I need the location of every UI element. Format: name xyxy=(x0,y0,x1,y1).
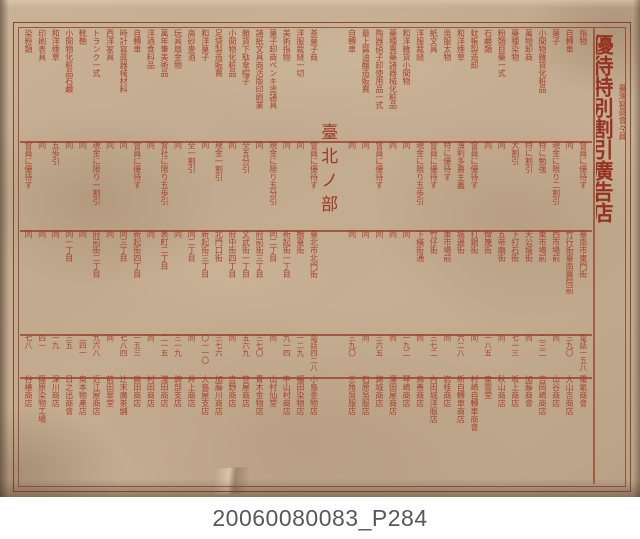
entry-column: 萬物卸商特に割引天公壇街同加藤商會 xyxy=(522,29,535,484)
entry-goods: 小間物化粧品 xyxy=(226,29,239,141)
entry-column: 洋酒食料品同同同村田商店 xyxy=(144,29,157,484)
entry-name: 大山吉商店 xyxy=(563,375,576,484)
entry-phone: 一二九 xyxy=(294,334,307,375)
entry-address: 同 xyxy=(346,230,359,334)
entry-goods: 萬年筆美術品 xyxy=(158,29,171,141)
entry-name: 澤田屋商店 xyxy=(386,375,399,484)
entry-terms: 同 xyxy=(294,141,307,230)
title-separator-rule xyxy=(593,28,595,484)
entry-phone: 三六五 xyxy=(373,334,386,375)
entry-goods: 洋服裁縫 xyxy=(414,29,427,141)
entry-goods: 自轉車 xyxy=(346,29,359,141)
entry-address: 臺南市東門街 xyxy=(577,230,590,334)
entry-goods: 西洋家具 xyxy=(104,29,117,141)
entry-column: 最上醤油釀造販賣同同同石原吳服店 xyxy=(359,29,372,484)
entry-column: 玩具扇金物同同三一九錦部支店 xyxy=(172,29,185,484)
entry-address: 新起街四丁目 xyxy=(131,230,144,334)
title-column: 臺灣寫眞會々員 優待特別割引廣告店 （必ず會員證持參の事） xyxy=(596,28,628,484)
entry-terms: 同 xyxy=(117,141,130,230)
entry-name: 石原吳服店 xyxy=(359,375,372,484)
entry-column: トランク一式現金に限り一割引府前街二丁目九六八近江屋商店 xyxy=(90,29,103,484)
entry-terms: 同 xyxy=(359,141,372,230)
entry-goods: 陶器硝子卸使用品一式 xyxy=(373,29,386,141)
entry-column: 萬年筆美術品會社に限り五歩引表町二丁目二一五淺田商店 xyxy=(158,29,171,484)
entry-name: 加藤川商店 xyxy=(212,375,225,484)
entry-name: 村田商店 xyxy=(144,375,157,484)
entry-phone: 同 xyxy=(495,334,508,375)
entry-column: 足袋製造販賣現金一割引北門口街三七六加藤川商店 xyxy=(212,29,225,484)
entry-column: 和洋菓子同新起街三丁目〇一一〇大島屋支店 xyxy=(199,29,212,484)
entry-column: 諸紙文具商活版印刷業同府前街三丁目三七〇青木金物店 xyxy=(253,29,266,484)
entry-goods: 小間物化粧品石鹸 xyxy=(63,29,76,141)
entry-phone: 同 xyxy=(144,334,157,375)
entry-terms: 大割引 xyxy=(509,141,522,230)
entry-phone: 同 xyxy=(185,334,198,375)
entry-address: 同 xyxy=(400,230,413,334)
entry-address: 竹仔街 xyxy=(427,230,440,334)
entry-phone: 三五 xyxy=(63,334,76,375)
entry-goods: 和洋煙草 xyxy=(454,29,467,141)
entry-phone: 七八四 xyxy=(117,334,130,375)
entry-goods: 時計寫眞器械材料 xyxy=(117,29,130,141)
entry-terms: 特に割引 xyxy=(522,141,535,230)
entry-goods: 印刷表具 xyxy=(36,29,49,141)
entry-phone: 同 xyxy=(104,334,117,375)
entry-phone: 同 xyxy=(550,334,563,375)
entry-address: 新起街三丁目 xyxy=(199,230,212,334)
entry-address: 臺北市北門街 xyxy=(307,230,320,334)
entry-column: 吳服太物特に優待す東市場前同岩桂商店 xyxy=(441,29,454,484)
entry-name: 日之出商會 xyxy=(63,375,76,484)
entry-column: 自轉車同同三九〇三角吳服店 xyxy=(346,29,359,484)
entry-terms: 全五分引 xyxy=(240,141,253,230)
entry-column: 小間物化粧品同府中街四丁目同吉野商店 xyxy=(226,29,239,484)
entry-goods: 玩具扇金物 xyxy=(172,29,185,141)
entry-goods: 和洋雜貨小間物 xyxy=(400,29,413,141)
entry-name: 青木金物店 xyxy=(253,375,266,484)
entry-address: 竹行街臺南醫院前 xyxy=(563,230,576,334)
entry-terms: 現金一割引 xyxy=(212,141,225,230)
advertiser-entries: 指物會員に優待す臺南市東門街電話一五八電氣商會自轉車同竹行街臺南醫院前三九〇大山… xyxy=(22,29,590,484)
entry-phone: 二四一 xyxy=(76,334,89,375)
entry-name: 電氣商會 xyxy=(577,375,590,484)
entry-phone: 〇一一〇 xyxy=(199,334,212,375)
entry-goods: 小間物雜貨化粧品 xyxy=(536,29,549,141)
entry-phone: 九六八 xyxy=(90,334,103,375)
entry-column: 西洋家具同同同前田翠堂 xyxy=(104,29,117,484)
entry-name: 加藤商會 xyxy=(522,375,535,484)
entry-terms: 同 xyxy=(253,141,266,230)
entry-address: 城邊街 xyxy=(454,230,467,334)
entry-terms: 同 xyxy=(563,141,576,230)
entry-goods: 洋酒食料品 xyxy=(144,29,157,141)
entry-column: 和洋雜貨小間物同同一九二琴崎商店 xyxy=(400,29,413,484)
entry-column: 美術指物同新起街一丁目九一四中山村商店 xyxy=(280,29,293,484)
entry-terms: 同 xyxy=(482,141,495,230)
entry-terms: 同 xyxy=(36,141,49,230)
entry-name: 錦部支店 xyxy=(172,375,185,484)
entry-terms: 特に勉強 xyxy=(536,141,549,230)
entry-column: 靴鞄同同二四一奥本物產店 xyxy=(76,29,89,484)
entry-terms: 會員に優待す xyxy=(22,141,35,230)
entry-phone: 電話一五八 xyxy=(577,334,590,375)
entry-address: 同 xyxy=(373,230,386,334)
entry-terms: 現金に限り二割引 xyxy=(550,141,563,230)
entry-column: 時計寫眞器械材料同同三丁目七八四辻末廣茶舖 xyxy=(117,29,130,484)
entry-address: 同二丁目 xyxy=(267,230,280,334)
entry-name: 井上商店 xyxy=(185,375,198,484)
entry-terms: 會員に優待す xyxy=(577,141,590,230)
entry-phone: 二一五 xyxy=(158,334,171,375)
entry-address: 同 xyxy=(22,230,35,334)
entry-address: 同 xyxy=(144,230,157,334)
entry-address: 府前街二丁目 xyxy=(90,230,103,334)
entry-column: 陶器硝子卸使用品一式會員に優待す同三六五錦城商店 xyxy=(373,29,386,484)
entry-address: 同 xyxy=(49,230,62,334)
entry-address: 同 xyxy=(359,230,372,334)
entry-name: 大島屋支店 xyxy=(199,375,212,484)
entry-name: 近江屋商店 xyxy=(90,375,103,484)
entry-terms: 同 xyxy=(386,141,399,230)
entry-column: 茶菓子商會員に優待す臺北市北門街電話四二八小島金物店 xyxy=(307,29,320,484)
entry-terms: 五歩引 xyxy=(49,141,62,230)
entry-phone: 同 xyxy=(359,334,372,375)
entry-name: 篠原染物工場 xyxy=(36,375,49,484)
entry-goods: 茶菓子商 xyxy=(307,29,320,141)
paper-edge-right xyxy=(633,0,640,497)
entry-phone: 七八 xyxy=(22,334,35,375)
entry-name: 奥本物產店 xyxy=(76,375,89,484)
entry-goods: 紙文具 xyxy=(427,29,440,141)
entry-terms: 特に優待す xyxy=(441,141,454,230)
entry-phone: 同 xyxy=(468,334,481,375)
entry-terms: 會社に限り五歩引 xyxy=(158,141,171,230)
entry-terms: 同 xyxy=(280,141,293,230)
entry-goods: 藥種染物 xyxy=(509,29,522,141)
entry-name: 高田商店 xyxy=(131,375,144,484)
entry-terms: 現金に限り一割引 xyxy=(90,141,103,230)
entry-terms: 會員に優待す xyxy=(373,141,386,230)
entry-column: 石鹸類同做篾街一八五東雲堂 xyxy=(482,29,495,484)
entry-terms: 同 xyxy=(76,141,89,230)
entry-name: 三角吳服店 xyxy=(346,375,359,484)
entry-name: 中山村商店 xyxy=(280,375,293,484)
entry-phone: 一五三 xyxy=(131,334,144,375)
entry-address: 新起街一丁目 xyxy=(280,230,293,334)
entry-terms: 同 xyxy=(495,141,508,230)
entry-column: 小間物化粧品石鹸同同一丁目三五日之出商會 xyxy=(63,29,76,484)
caption-band: 20060080083_P284 xyxy=(0,497,640,539)
entry-name: 岩桂商店 xyxy=(441,375,454,484)
paper-edge-top xyxy=(0,0,640,8)
entry-terms: 同 xyxy=(63,141,76,230)
entry-goods: 石鹸類 xyxy=(482,29,495,141)
entry-name: 谷椿商店 xyxy=(22,375,35,484)
entry-name: 錦城商店 xyxy=(373,375,386,484)
entry-phone: 五六九 xyxy=(240,334,253,375)
entry-column: 藥種染物大割引下打石街七一三坂上商店 xyxy=(509,29,522,484)
entry-name: 淺田商店 xyxy=(158,375,171,484)
entry-terms: 現金に限り五分引 xyxy=(267,141,280,230)
entry-goods: 藥種賣藥諸器械化粧品 xyxy=(386,29,399,141)
page-title: 優待特別割引廣告店 xyxy=(596,34,617,484)
entry-column: 自轉車同竹行街臺南醫院前三九〇大山吉商店 xyxy=(563,29,576,484)
entry-terms: 薄利多賣主義 xyxy=(454,141,467,230)
entry-name: 內田城洋服店 xyxy=(427,375,440,484)
entry-address: 東市場前 xyxy=(536,230,549,334)
entry-column: 高砂麥酒全一割引同二丁目同井上商店 xyxy=(185,29,198,484)
entry-address: 同二丁目 xyxy=(185,230,198,334)
entry-name: 吉岡崎商店 xyxy=(536,375,549,484)
entry-address: 打銀街 xyxy=(468,230,481,334)
entry-goods: 美術指物 xyxy=(280,29,293,141)
entry-address: 同三丁目 xyxy=(117,230,130,334)
entry-phone: 三九〇 xyxy=(563,334,576,375)
entry-goods: 自轉車 xyxy=(563,29,576,141)
entry-name: 秋山商店 xyxy=(495,375,508,484)
entry-goods: 自轉車 xyxy=(131,29,144,141)
entry-name: 村崎自轉車商會 xyxy=(468,375,481,484)
entry-goods: 吳服太物 xyxy=(441,29,454,141)
entry-goods: 染粉類 xyxy=(22,29,35,141)
entry-goods: 靴鞄 xyxy=(76,29,89,141)
entry-phone: 同 xyxy=(441,334,454,375)
entry-column: 雜貨下駄傘帽子全五分引文武街一丁目五六九笹屋商店 xyxy=(240,29,253,484)
entry-phone: 三七〇 xyxy=(253,334,266,375)
entry-name: 山谷商店 xyxy=(550,375,563,484)
entry-address: 同 xyxy=(104,230,117,334)
entry-name: 前田翠堂 xyxy=(104,375,117,484)
entry-goods: 菓子 xyxy=(550,29,563,141)
entry-goods: 蚊帳製造卸 xyxy=(468,29,481,141)
scanned-paper: 臺灣寫眞會々員 優待特別割引廣告店 （必ず會員證持參の事） 指物會員に優待す臺南… xyxy=(0,0,640,497)
entry-phone: 同 xyxy=(414,334,427,375)
entry-name: 福田染物店 xyxy=(294,375,307,484)
entry-terms: 同 xyxy=(104,141,117,230)
entry-phone: 七一三 xyxy=(509,334,522,375)
entry-goods: 萬物卸商 xyxy=(522,29,535,141)
entry-name: 吉野商店 xyxy=(226,375,239,484)
entry-column: 印刷表具同同四一篠原染物工場 xyxy=(36,29,49,484)
entry-name: 笹屋商店 xyxy=(240,375,253,484)
entry-phone: 六二八 xyxy=(454,334,467,375)
entry-address: 同 xyxy=(76,230,89,334)
entry-address: 同一丁目 xyxy=(63,230,76,334)
section-divider: 臺北ノ部 xyxy=(321,29,345,484)
entry-phone: 三七二 xyxy=(427,334,440,375)
entry-column: 紙文具會員に優待す竹仔街三七二內田城洋服店 xyxy=(427,29,440,484)
entry-terms: 同 xyxy=(226,141,239,230)
entry-name: 辻末廣茶舖 xyxy=(117,375,130,484)
entry-terms: 同 xyxy=(346,141,359,230)
entry-column: 和洋煙草五歩引同一九深川商店 xyxy=(49,29,62,484)
archive-id-caption: 20060080083_P284 xyxy=(212,505,427,532)
entry-goods: 和洋菓子 xyxy=(199,29,212,141)
entry-name: 山村仙堂 xyxy=(267,375,280,484)
entry-column: 藥種賣藥諸器械化粧品同同同澤田屋商店 xyxy=(386,29,399,484)
entry-address: 文武街一丁目 xyxy=(240,230,253,334)
entry-column: 指物會員に優待す臺南市東門街電話一五八電氣商會 xyxy=(577,29,590,484)
entry-column: 蚊帳製造卸會員に優待す打銀街同村崎自轉車商會 xyxy=(468,29,481,484)
entry-goods: 洋服裁縫一切 xyxy=(294,29,307,141)
entry-phone: 四一 xyxy=(36,334,49,375)
entry-terms: 同 xyxy=(172,141,185,230)
entry-phone: 電話四二八 xyxy=(307,334,320,375)
entry-address: 府前街三丁目 xyxy=(253,230,266,334)
entry-name: 坂上商店 xyxy=(509,375,522,484)
entry-column: 菓子現金に限り二割引西市場前同山谷商店 xyxy=(550,29,563,484)
entry-phone: 同 xyxy=(522,334,535,375)
entry-address: 做篾街 xyxy=(482,230,495,334)
entry-goods: 諸紙文具商活版印刷業 xyxy=(253,29,266,141)
entry-name: 東雲堂 xyxy=(482,375,495,484)
entry-phone: 三七六 xyxy=(212,334,225,375)
entry-goods: 最上醤油釀造販賣 xyxy=(359,29,372,141)
entry-goods: トランク一式 xyxy=(90,29,103,141)
entry-address: 西市場前 xyxy=(550,230,563,334)
entry-column: 洋服裁縫現金に限り五歩引下橫街通同鳥善商店 xyxy=(414,29,427,484)
entry-column: 洋服裁縫一切同撫臺街一二九福田染物店 xyxy=(294,29,307,484)
entry-goods: 粉類目藥一式 xyxy=(495,29,508,141)
entry-address: 東市場前 xyxy=(441,230,454,334)
entry-address: 天公壇街 xyxy=(522,230,535,334)
entry-terms: 同 xyxy=(144,141,157,230)
paper-edge-left xyxy=(0,0,9,497)
entry-address: 五帝廟街 xyxy=(495,230,508,334)
entry-terms: 同 xyxy=(400,141,413,230)
entry-phone: 同 xyxy=(386,334,399,375)
entry-name: 琴崎商店 xyxy=(400,375,413,484)
entry-column: 小間物雜貨化粧品特に勉強東市場前二三二吉岡崎商店 xyxy=(536,29,549,484)
entry-name: 小島金物店 xyxy=(307,375,320,484)
entry-phone: 一八五 xyxy=(482,334,495,375)
entry-address: 撫臺街 xyxy=(294,230,307,334)
entry-address: 府中街四丁目 xyxy=(226,230,239,334)
entry-phone: 同 xyxy=(267,334,280,375)
entry-phone: 三一九 xyxy=(172,334,185,375)
section-divider-label: 臺北ノ部 xyxy=(321,29,345,484)
entry-address: 同 xyxy=(386,230,399,334)
entry-name: 深川商店 xyxy=(49,375,62,484)
entry-address: 同 xyxy=(172,230,185,334)
entry-goods: 雜貨下駄傘帽子 xyxy=(240,29,253,141)
entry-terms: 會員に優待す xyxy=(307,141,320,230)
entry-phone: 同 xyxy=(226,334,239,375)
entry-terms: 全一割引 xyxy=(185,141,198,230)
entry-goods: 指物 xyxy=(577,29,590,141)
entry-goods: 菓子卸商ペンキ塗諸具 xyxy=(267,29,280,141)
entry-column: 染粉類會員に優待す同七八谷椿商店 xyxy=(22,29,35,484)
entry-address: 北門口街 xyxy=(212,230,225,334)
entry-name: 鳥善商店 xyxy=(414,375,427,484)
entry-terms: 會員に優待す xyxy=(427,141,440,230)
entry-address: 下打石街 xyxy=(509,230,522,334)
entry-name: 新自轉車商店 xyxy=(454,375,467,484)
entry-phone: 九一四 xyxy=(280,334,293,375)
entry-terms: 現金に限り五歩引 xyxy=(414,141,427,230)
entry-column: 自轉車會員に優待す新起街四丁目一五三高田商店 xyxy=(131,29,144,484)
entry-phone: 三九〇 xyxy=(346,334,359,375)
entry-address: 下橫街通 xyxy=(414,230,427,334)
entry-column: 菓子卸商ペンキ塗諸具現金に限り五分引同二丁目同山村仙堂 xyxy=(267,29,280,484)
entry-column: 和洋煙草薄利多賣主義城邊街六二八新自轉車商店 xyxy=(454,29,467,484)
entry-terms: 會員に優待す xyxy=(131,141,144,230)
entry-phone: 一九 xyxy=(49,334,62,375)
association-name: 臺灣寫眞會々員 xyxy=(617,84,628,484)
entry-address: 同 xyxy=(36,230,49,334)
entry-terms: 同 xyxy=(199,141,212,230)
entry-goods: 高砂麥酒 xyxy=(185,29,198,141)
entry-address: 表町二丁目 xyxy=(158,230,171,334)
entry-goods: 和洋煙草 xyxy=(49,29,62,141)
entry-phone: 二三二 xyxy=(536,334,549,375)
entry-goods: 足袋製造販賣 xyxy=(212,29,225,141)
entry-terms: 會員に優待す xyxy=(468,141,481,230)
entry-column: 粉類目藥一式同五帝廟街同秋山商店 xyxy=(495,29,508,484)
entry-phone: 一九二 xyxy=(400,334,413,375)
